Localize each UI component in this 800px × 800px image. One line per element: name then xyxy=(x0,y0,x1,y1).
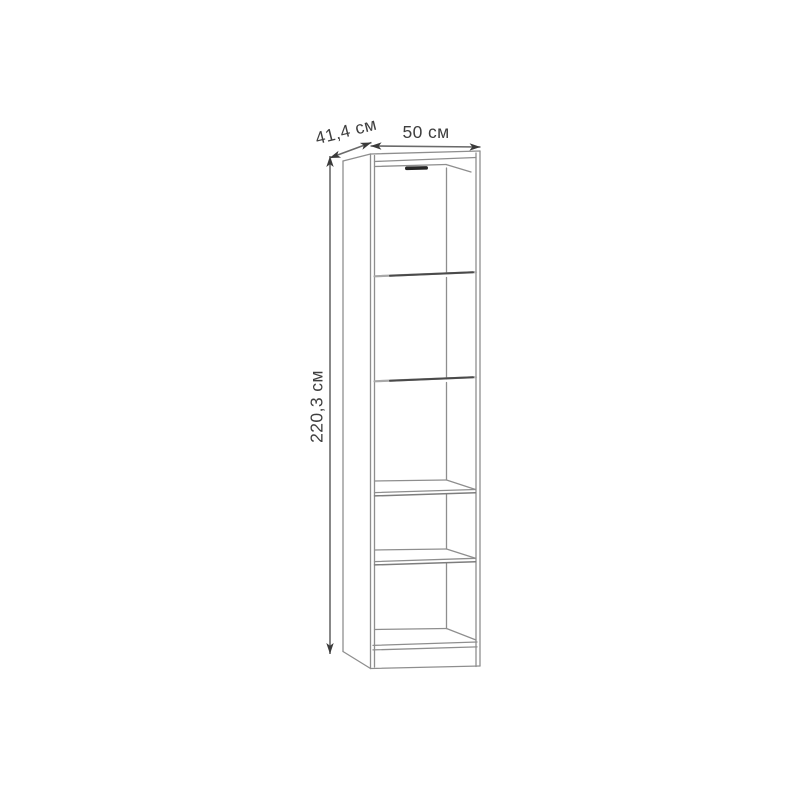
shelf4-right-diagonal xyxy=(447,549,476,558)
top-front-edge xyxy=(371,151,481,154)
bottom-panel-front-edge xyxy=(373,642,477,645)
dimension-lines xyxy=(330,143,481,655)
bottom-panel-right-diagonal xyxy=(447,629,477,641)
top-panel-rear-diagonal xyxy=(446,165,471,173)
shelf4-rear-edge xyxy=(375,549,447,550)
upper-shelf-edges xyxy=(375,272,477,381)
shelf1-edge-dark xyxy=(390,272,473,276)
top-panel-underside-edge xyxy=(375,165,447,167)
diagram-canvas: 41,4 см 50 см 220,3 см xyxy=(0,0,800,800)
shelf2-edge-dark xyxy=(390,377,473,381)
top-panel-front-band xyxy=(375,158,477,162)
bottom-front-edge xyxy=(371,666,481,669)
shelf3-right-diagonal xyxy=(447,480,476,490)
bookcase-line-drawing xyxy=(0,0,800,800)
shelf3-rear-edge xyxy=(375,480,447,481)
bookcase-body xyxy=(343,151,480,669)
height-dimension-label: 220,3 см xyxy=(307,359,328,455)
bottom-panel-rear-edge xyxy=(375,629,447,630)
side-panel-top-edge xyxy=(343,154,371,161)
width-dimension-arrow xyxy=(371,146,481,147)
shelf3-front-bottom-edge xyxy=(375,493,476,496)
width-dimension-label: 50 см xyxy=(378,122,474,143)
shelf4-front-top-edge xyxy=(375,558,476,561)
plinth-top-edge xyxy=(373,647,477,650)
side-panel-bottom-edge xyxy=(343,652,371,669)
shelf4-front-bottom-edge xyxy=(375,562,476,565)
shelf3-front-top-edge xyxy=(375,490,476,493)
top-hardware-slot xyxy=(405,166,428,170)
